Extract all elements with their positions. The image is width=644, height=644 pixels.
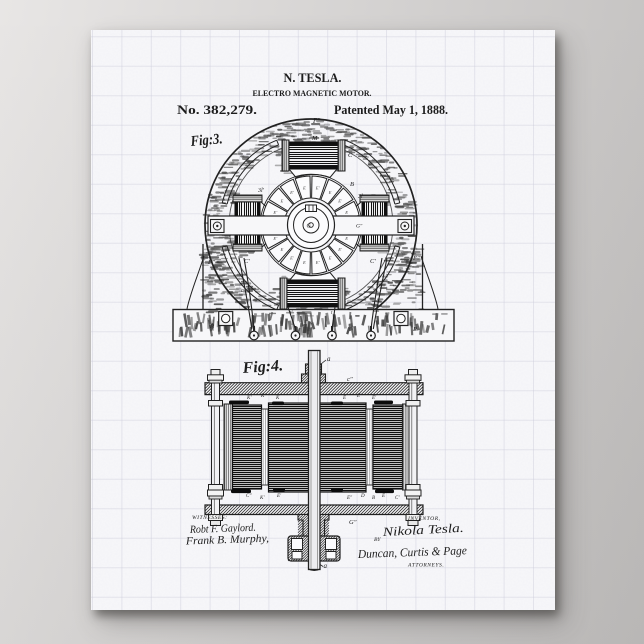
svg-text:N. TESLA.: N. TESLA.: [284, 70, 342, 85]
svg-text:E: E: [328, 256, 332, 261]
svg-text:E″: E″: [356, 394, 363, 399]
svg-text:K″: K″: [260, 394, 267, 399]
svg-text:E: E: [344, 236, 348, 241]
svg-text:G″: G″: [349, 519, 357, 526]
svg-text:E: E: [328, 190, 332, 195]
svg-text:3l′: 3l′: [257, 188, 265, 194]
svg-text:INVENTOR,: INVENTOR,: [407, 516, 441, 522]
svg-text:M: M: [311, 135, 318, 142]
svg-text:Fig:3.: Fig:3.: [189, 131, 223, 150]
svg-text:3l: 3l: [357, 194, 363, 200]
svg-text:P: P: [412, 326, 417, 333]
svg-text:E: E: [342, 396, 346, 401]
svg-text:Fig:4.: Fig:4.: [241, 357, 284, 377]
svg-text:G: G: [307, 224, 312, 230]
svg-text:F″: F″: [412, 255, 420, 262]
svg-text:a: a: [324, 562, 328, 570]
svg-text:a: a: [327, 355, 331, 363]
svg-text:D: D: [360, 494, 365, 499]
svg-text:P: P: [209, 323, 214, 330]
svg-text:ELECTRO MAGNETIC MOTOR.: ELECTRO MAGNETIC MOTOR.: [253, 88, 372, 98]
svg-text:G″: G″: [356, 224, 363, 230]
svg-text:C″: C″: [246, 494, 252, 499]
svg-text:K′: K′: [246, 396, 252, 401]
svg-text:BY: BY: [374, 537, 381, 543]
svg-text:B: B: [350, 181, 354, 188]
svg-text:K′: K′: [259, 496, 265, 501]
svg-text:Patented May 1, 1888.: Patented May 1, 1888.: [334, 103, 448, 117]
svg-text:E: E: [344, 210, 348, 215]
svg-text:B: B: [372, 496, 375, 501]
svg-text:ATTORNEYS.: ATTORNEYS.: [407, 563, 444, 569]
svg-text:WITNESSES:: WITNESSES:: [192, 515, 227, 521]
svg-text:c″: c″: [347, 376, 353, 383]
svg-text:F″: F″: [207, 259, 215, 266]
svg-text:E: E: [302, 185, 306, 190]
svg-text:c: c: [241, 288, 244, 294]
svg-text:C′: C′: [370, 258, 376, 265]
svg-text:E′: E′: [371, 396, 377, 401]
svg-text:E: E: [381, 494, 385, 499]
svg-text:E″: E″: [346, 496, 353, 501]
svg-text:E′: E′: [276, 494, 282, 499]
svg-text:E: E: [279, 247, 283, 252]
svg-text:F″: F″: [312, 117, 320, 125]
svg-text:No. 382,279.: No. 382,279.: [177, 102, 257, 117]
svg-text:K: K: [275, 396, 280, 401]
svg-text:C′: C′: [244, 258, 250, 265]
svg-text:E: E: [302, 260, 306, 265]
svg-text:C: C: [348, 152, 353, 159]
svg-text:E: E: [279, 198, 283, 203]
